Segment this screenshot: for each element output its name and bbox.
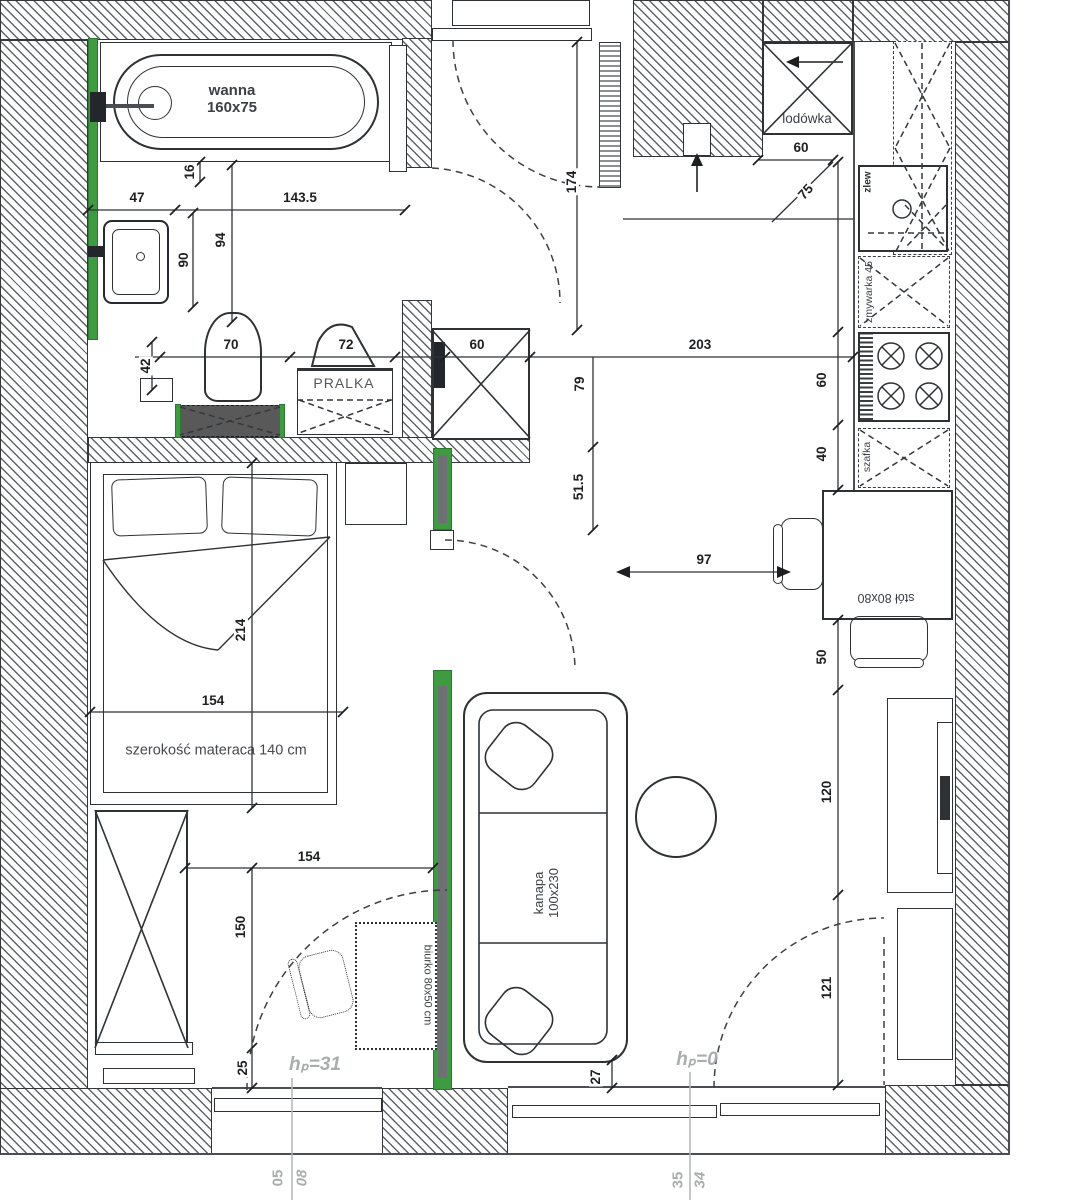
washer-label: PRALKA bbox=[313, 375, 374, 391]
lower-cabinet bbox=[897, 908, 953, 1060]
duct-green-right bbox=[279, 404, 285, 438]
level-right-label: hₚ=0 bbox=[676, 1049, 717, 1071]
dim-60-counter: 60 bbox=[815, 370, 829, 389]
dim-42: 42 bbox=[139, 356, 153, 375]
wall-right bbox=[955, 42, 1010, 1085]
boundary-right bbox=[1008, 0, 1010, 1155]
bathtub-size: 160x75 bbox=[207, 99, 257, 116]
nightstand bbox=[345, 463, 407, 525]
bath-sink-tap bbox=[88, 246, 104, 257]
dim-60-fridge: 60 bbox=[791, 141, 810, 155]
desk-label: biurko 80x50 cm bbox=[421, 945, 434, 1026]
partition-stub-core bbox=[438, 455, 447, 523]
window-edge-mid bbox=[508, 1086, 885, 1088]
dining-table-label: stół 80x80 bbox=[858, 591, 915, 605]
dim-75: 75 bbox=[794, 180, 817, 204]
level-left-label: hₚ=31 bbox=[289, 1054, 341, 1076]
duct-green-left bbox=[175, 404, 181, 438]
dim-143-5: 143.5 bbox=[281, 191, 319, 205]
tv-label-bar bbox=[940, 776, 950, 820]
radiator-inner bbox=[103, 1068, 195, 1084]
bath-sink-knob bbox=[136, 252, 145, 261]
dim-51-5: 51.5 bbox=[572, 472, 586, 502]
window-bottom-mid bbox=[512, 1105, 717, 1118]
bathtub-label: wanna 160x75 bbox=[207, 82, 257, 117]
partition-long-core bbox=[438, 686, 447, 1078]
shower-handle bbox=[434, 342, 445, 388]
dim-90: 90 bbox=[177, 250, 191, 269]
dim-121: 121 bbox=[820, 975, 834, 1002]
toilet bbox=[204, 312, 262, 402]
pillow-left bbox=[111, 476, 208, 536]
bathtub-faucet-pipe bbox=[106, 104, 154, 108]
wall-bath-right-lower bbox=[402, 300, 432, 440]
dim-72: 72 bbox=[336, 338, 355, 352]
wall-above-fridge bbox=[763, 0, 853, 42]
num-08: 08 bbox=[293, 1170, 310, 1187]
stove-side-panel bbox=[860, 334, 873, 420]
dim-97: 97 bbox=[694, 553, 713, 567]
toilet-shelf bbox=[140, 378, 173, 402]
balcony-door-leaf bbox=[720, 1103, 880, 1116]
window-top bbox=[432, 28, 592, 41]
wall-corner-bottom-right bbox=[885, 1085, 1010, 1155]
balcony-slab-top bbox=[452, 0, 590, 26]
wall-top-right bbox=[853, 0, 1010, 42]
wall-top bbox=[0, 0, 432, 40]
entry-door-leaf bbox=[599, 42, 621, 188]
counter-front-line bbox=[853, 42, 855, 490]
chair-bottom-back bbox=[854, 658, 924, 668]
dim-27: 27 bbox=[589, 1067, 603, 1086]
sofa-size: 100x230 bbox=[547, 868, 562, 918]
dim-70: 70 bbox=[221, 338, 240, 352]
dim-94: 94 bbox=[214, 230, 228, 249]
bath-column bbox=[389, 45, 407, 172]
dim-16: 16 bbox=[183, 162, 197, 181]
wall-left bbox=[0, 40, 88, 1155]
sofa-name: kanapa bbox=[532, 868, 547, 918]
dim-47: 47 bbox=[127, 191, 146, 205]
dim-150: 150 bbox=[234, 914, 248, 941]
wall-bottom-mid bbox=[382, 1088, 508, 1155]
chair-bottom bbox=[850, 616, 928, 662]
dim-154-bed: 154 bbox=[200, 694, 227, 708]
partition-stub-cap bbox=[430, 530, 454, 550]
chair-left-back bbox=[773, 524, 783, 584]
wall-bottom-left bbox=[0, 1088, 212, 1155]
dim-79: 79 bbox=[573, 374, 587, 393]
chair-left bbox=[781, 518, 823, 590]
kitchen-sink-label: zlew bbox=[862, 171, 874, 192]
dim-50: 50 bbox=[815, 647, 829, 666]
dim-25: 25 bbox=[236, 1058, 250, 1077]
bath-sink-basin bbox=[112, 229, 160, 295]
bathtub-drain bbox=[138, 86, 172, 120]
fridge-label: lodówka bbox=[782, 111, 832, 127]
bathtub-faucet bbox=[90, 92, 106, 122]
green-wall-bathroom bbox=[88, 38, 98, 340]
dim-174: 174 bbox=[565, 169, 579, 196]
num-34: 34 bbox=[691, 1172, 708, 1189]
mattress-note: szerokość materaca 140 cm bbox=[125, 743, 306, 760]
entry-marker-box bbox=[683, 123, 711, 156]
floor-plan: wanna 160x75 PRALKA lodówka zlew zmywark… bbox=[0, 0, 1077, 1200]
dim-203: 203 bbox=[687, 338, 714, 352]
num-05: 05 bbox=[269, 1170, 286, 1187]
bathtub-name: wanna bbox=[207, 82, 257, 99]
pillow-right bbox=[221, 476, 318, 536]
dim-40: 40 bbox=[815, 444, 829, 463]
dim-214: 214 bbox=[234, 617, 248, 644]
window-bottom-left bbox=[214, 1098, 382, 1112]
sofa-label: kanapa 100x230 bbox=[532, 868, 562, 918]
cabinet-label: szafka bbox=[861, 442, 873, 472]
dim-154-room: 154 bbox=[296, 850, 323, 864]
radiator-outer bbox=[95, 1042, 193, 1055]
dim-120: 120 bbox=[820, 779, 834, 806]
wardrobe bbox=[95, 810, 188, 1048]
boundary-bottom bbox=[0, 1153, 1010, 1155]
dim-60-shower: 60 bbox=[467, 338, 486, 352]
wall-hall-band bbox=[88, 437, 530, 463]
duct-box bbox=[177, 405, 283, 437]
side-table bbox=[635, 776, 717, 858]
num-35: 35 bbox=[669, 1172, 686, 1189]
window-edge-left bbox=[212, 1087, 382, 1089]
dishwasher-label: zmywarka 45 bbox=[863, 261, 875, 323]
